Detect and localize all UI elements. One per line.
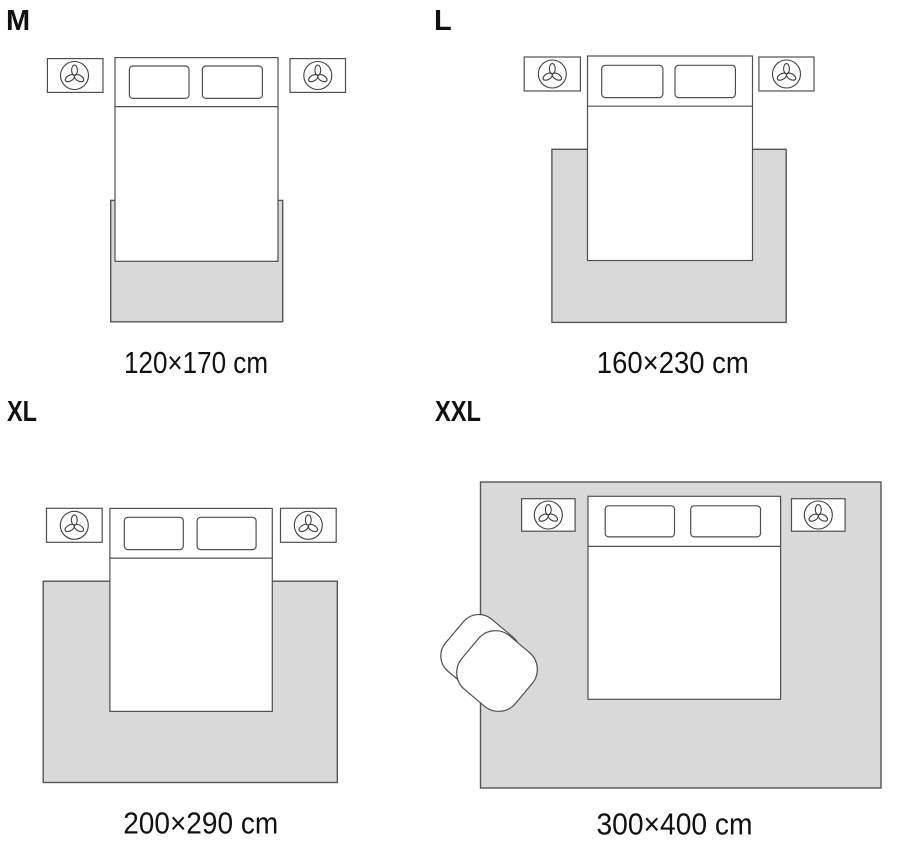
svg-text:L: L [434, 5, 452, 37]
svg-text:XL: XL [7, 396, 37, 428]
svg-text:300×400 cm: 300×400 cm [597, 807, 753, 842]
svg-text:160×230 cm: 160×230 cm [597, 345, 749, 380]
svg-text:200×290 cm: 200×290 cm [123, 806, 278, 841]
svg-text:120×170 cm: 120×170 cm [124, 345, 268, 380]
svg-text:M: M [6, 5, 30, 37]
svg-text:XXL: XXL [435, 396, 481, 428]
